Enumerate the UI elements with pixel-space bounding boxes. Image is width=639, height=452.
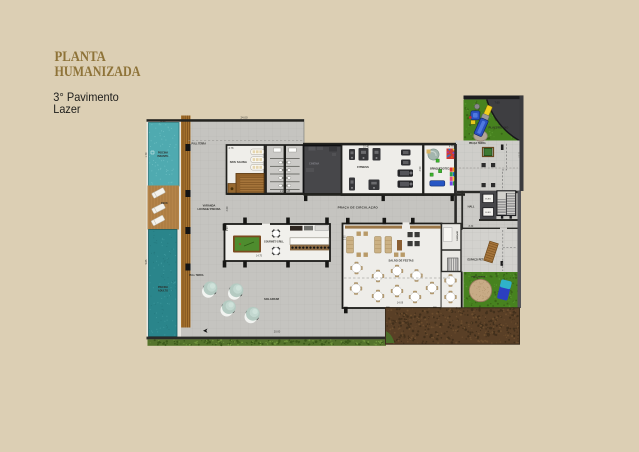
svg-text:4.50: 4.50 xyxy=(419,166,422,171)
svg-text:9.00: 9.00 xyxy=(345,235,347,240)
svg-text:PLAYGROUND: PLAYGROUND xyxy=(489,126,509,130)
svg-text:24.00: 24.00 xyxy=(241,116,248,120)
svg-text:SOLARIUM: SOLARIUM xyxy=(264,297,280,301)
svg-text:ADULTO: ADULTO xyxy=(158,289,168,292)
svg-text:PULL TERRA: PULL TERRA xyxy=(189,274,204,277)
svg-text:DEPÓSITO: DEPÓSITO xyxy=(456,231,459,241)
svg-text:7.60: 7.60 xyxy=(494,100,500,104)
svg-text:8.30: 8.30 xyxy=(469,225,474,228)
svg-text:VARANDA: VARANDA xyxy=(203,204,216,208)
svg-text:ESPAÇO PET: ESPAÇO PET xyxy=(468,258,484,261)
svg-text:1.70: 1.70 xyxy=(145,152,148,157)
svg-text:PRAÇA TERRA: PRAÇA TERRA xyxy=(469,142,486,145)
svg-text:FITNESS: FITNESS xyxy=(357,165,369,169)
svg-text:4.00: 4.00 xyxy=(226,206,229,211)
svg-text:CINEMA: CINEMA xyxy=(309,162,319,166)
svg-text:HUMANIZADA: HUMANIZADA xyxy=(55,64,142,80)
svg-text:4.78: 4.78 xyxy=(229,147,234,150)
svg-text:ELEV.: ELEV. xyxy=(485,212,491,214)
svg-text:SPA/ SAUNA: SPA/ SAUNA xyxy=(230,160,247,164)
svg-text:4.20: 4.20 xyxy=(227,226,229,231)
svg-text:20.00: 20.00 xyxy=(274,330,281,334)
svg-text:PULL TERRA: PULL TERRA xyxy=(192,142,207,145)
svg-text:14.09: 14.09 xyxy=(397,302,404,305)
svg-text:14.75: 14.75 xyxy=(256,255,263,258)
svg-text:2.28 2.28: 2.28 2.28 xyxy=(280,190,291,193)
svg-text:HALL: HALL xyxy=(468,204,475,208)
svg-text:LOUNGE/ PISCINA: LOUNGE/ PISCINA xyxy=(197,207,220,211)
svg-text:5.85: 5.85 xyxy=(145,259,148,264)
svg-text:INFANTIL: INFANTIL xyxy=(157,155,169,158)
svg-text:PISC. TERRA: PISC. TERRA xyxy=(472,275,486,278)
svg-text:PRAÇA DE CIRCULAÇÃO: PRAÇA DE CIRCULAÇÃO xyxy=(338,205,379,210)
svg-text:11.10: 11.10 xyxy=(518,152,520,158)
svg-text:GOURMET/ GRILL: GOURMET/ GRILL xyxy=(264,241,285,243)
svg-text:DECK: DECK xyxy=(161,202,168,205)
svg-text:ELEV.: ELEV. xyxy=(485,198,491,200)
svg-text:Lazer: Lazer xyxy=(53,102,80,116)
svg-text:4.78: 4.78 xyxy=(449,146,454,149)
svg-text:PLANTA: PLANTA xyxy=(55,49,107,65)
